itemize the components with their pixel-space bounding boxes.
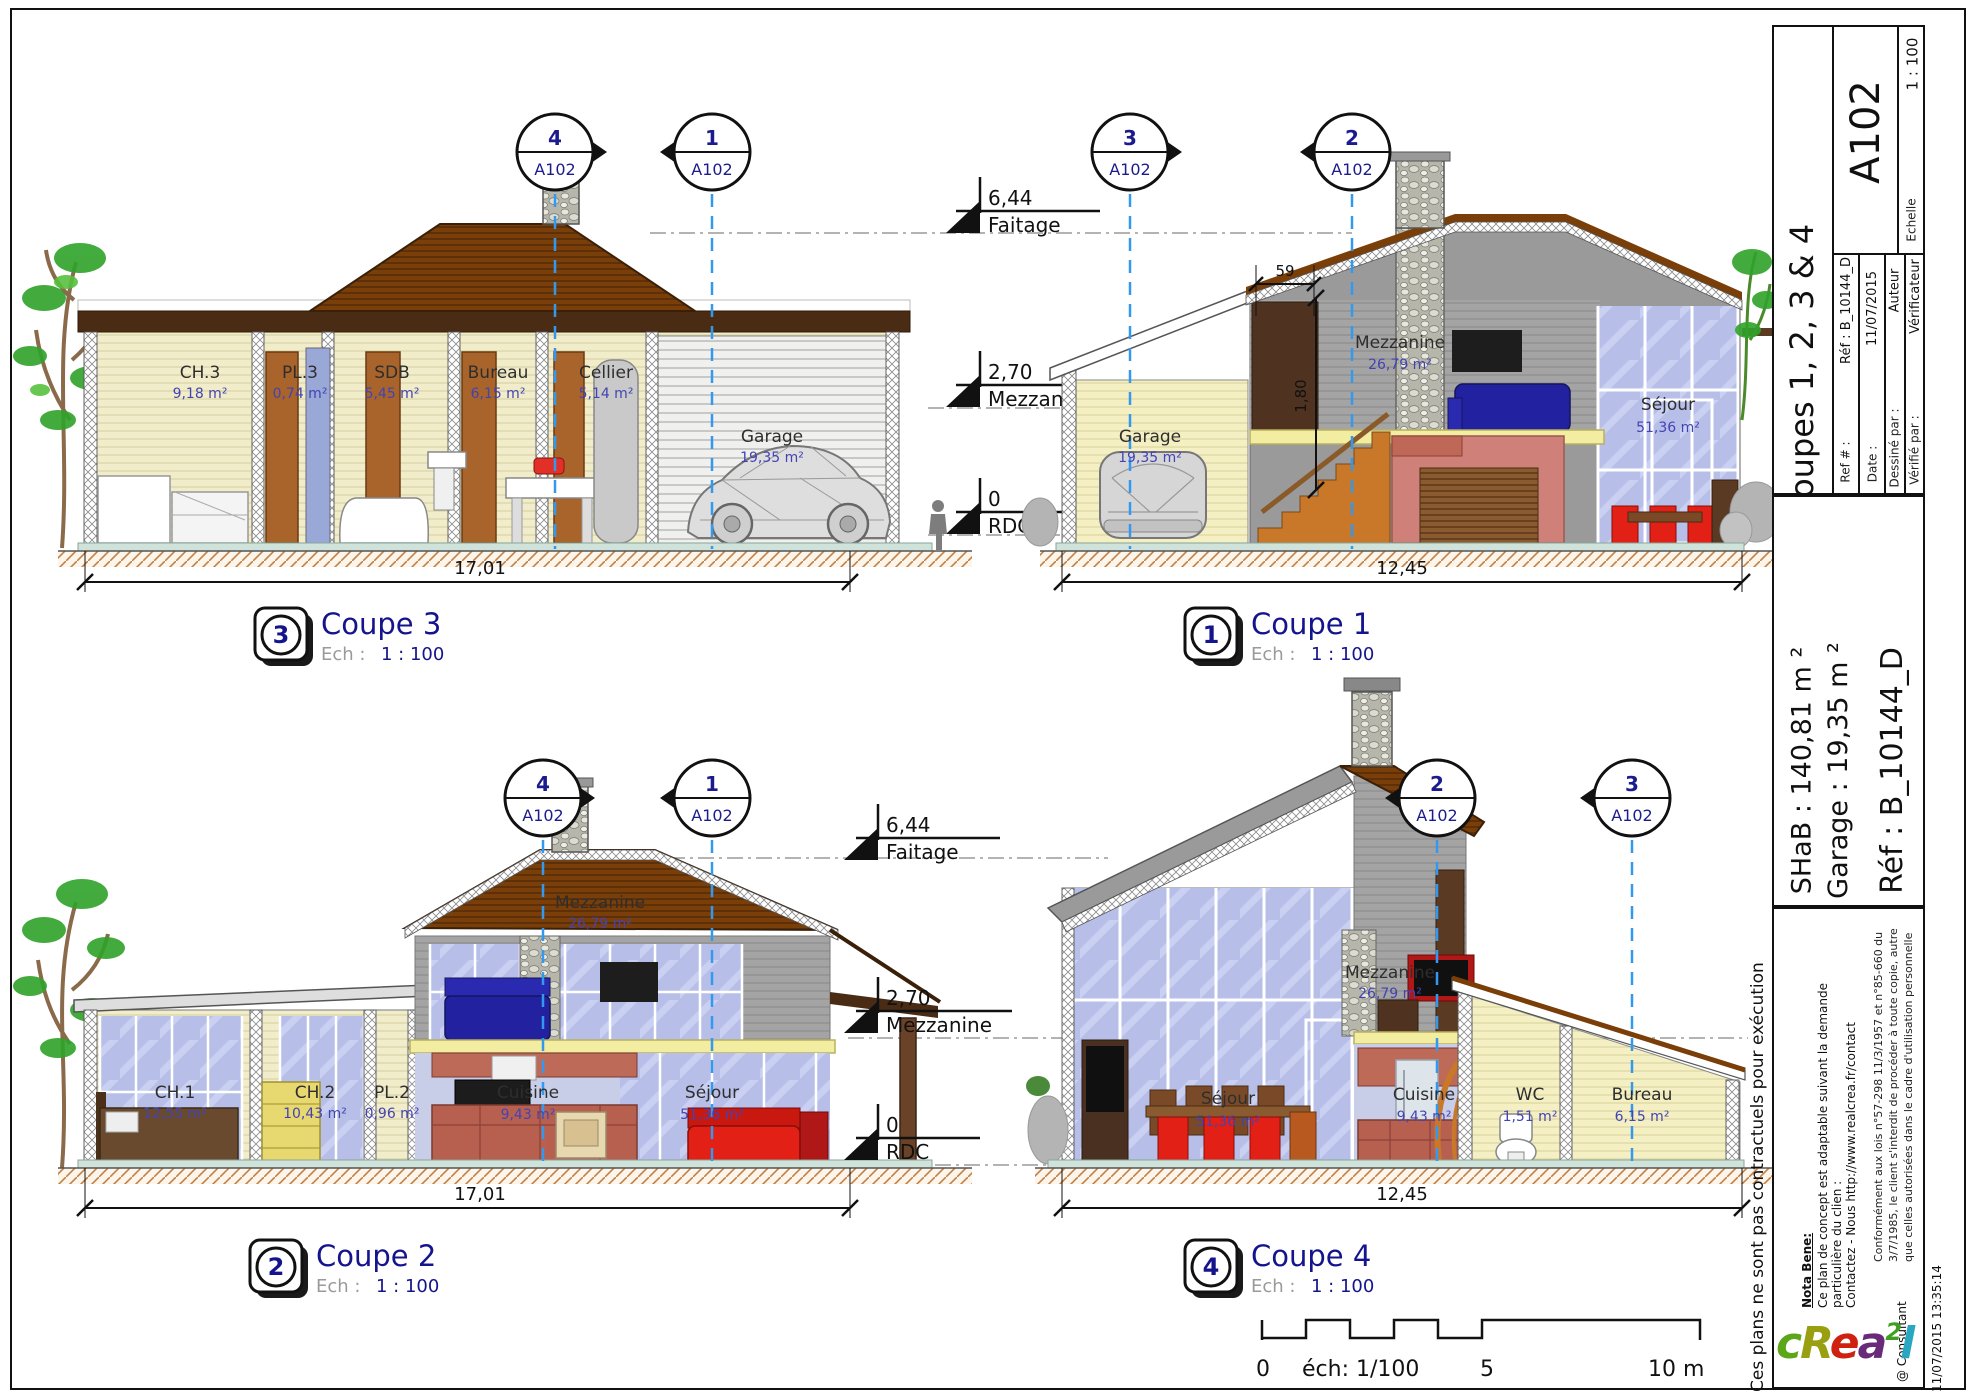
coupe-scale-label: Ech : <box>316 1276 360 1297</box>
dim-text: 17,01 <box>454 1184 506 1205</box>
room-area: 51,36 m² <box>1196 1114 1260 1130</box>
nota-bene-line2: particulière du clien : <box>1830 1181 1844 1308</box>
coupe-number: 1 <box>1203 621 1220 649</box>
dim-text: 1,80 <box>1292 379 1310 412</box>
room-area: 6,15 m² <box>471 386 526 402</box>
coupe2-drawing: CH.1 12,55 m² CH.2 10,43 m² PL.2 0,96 m²… <box>13 760 1012 1298</box>
room-area: 26,79 m² <box>1358 986 1422 1002</box>
coupe-title: Coupe 3 <box>321 607 441 641</box>
sections-drawing: CH.3 9,18 m² PL.3 0,74 m² SDB 5,45 m² Bu… <box>0 0 1980 1400</box>
level-value: 0 <box>886 1113 899 1137</box>
coupe-scale-label: Ech : <box>1251 644 1295 665</box>
level-label: Faitage <box>886 840 959 864</box>
room-area: 0,96 m² <box>365 1106 420 1122</box>
room-label: Bureau <box>468 363 529 383</box>
coupe4-drawing: Séjour 51,36 m² Mezzanine 26,79 m² Cuisi… <box>1026 678 1783 1298</box>
marker-number: 4 <box>548 126 562 150</box>
level-label: Faitage <box>988 213 1061 237</box>
garage-area: Garage : 19,35 m ² <box>1823 642 1854 899</box>
nota-bene-title: Nota Bene: <box>1800 1233 1814 1308</box>
marker-number: 2 <box>1430 772 1444 796</box>
coupe-title: Coupe 4 <box>1251 1239 1371 1273</box>
coupe4-ground <box>1035 1160 1783 1184</box>
level-marker-rdc-top: 0 RDC <box>946 478 1080 538</box>
legal-line1: Conformément aux lois n°57-298 11/3/1957… <box>1872 932 1885 1262</box>
print-timestamp: 11/07/2015 13:35:14 <box>1930 1265 1944 1392</box>
room-label: Bureau <box>1612 1085 1673 1105</box>
section-marker-1: 1 A102 <box>660 760 750 836</box>
dim-text: 12,45 <box>1376 558 1428 579</box>
room-label: Séjour <box>1201 1089 1255 1109</box>
room-area: 9,18 m² <box>173 386 228 402</box>
level-value: 2,70 <box>988 360 1033 384</box>
room-area: 19,35 m² <box>740 450 804 466</box>
coupe-scale-value: 1 : 100 <box>376 1276 439 1297</box>
marker-sheet: A102 <box>691 160 732 179</box>
room-area: 1,51 m² <box>1503 1109 1558 1125</box>
room-area: 51,36 m² <box>1636 420 1700 436</box>
room-area: 26,79 m² <box>568 916 632 932</box>
coupe-scale-label: Ech : <box>321 644 365 665</box>
level-value: 0 <box>988 487 1001 511</box>
room-label: Cellier <box>579 363 633 383</box>
checked-by-label: Vérifié par : <box>1908 415 1922 484</box>
dim-text: 59 <box>1275 262 1294 280</box>
coupe-title: Coupe 2 <box>316 1239 436 1273</box>
room-area: 5,14 m² <box>579 386 634 402</box>
room-area: 51,36 m² <box>680 1107 744 1123</box>
nota-bene-line1: Ce plan de concept est adaptable suivant… <box>1816 983 1830 1308</box>
scale-label: Echelle <box>1905 198 1919 241</box>
marker-sheet: A102 <box>1611 806 1652 825</box>
coupe-number: 4 <box>1203 1253 1220 1281</box>
room-label: SDB <box>374 363 410 383</box>
scalebar-zero: 0 <box>1256 1357 1270 1382</box>
crea-logo: cRea2l <box>1776 1318 1926 1388</box>
drawing-sheet: CH.3 9,18 m² PL.3 0,74 m² SDB 5,45 m² Bu… <box>0 0 1980 1400</box>
date-value: 11/07/2015 <box>1865 271 1880 346</box>
coupe3-drawing: CH.3 9,18 m² PL.3 0,74 m² SDB 5,45 m² Bu… <box>13 114 1112 666</box>
coupe-scale-value: 1 : 100 <box>1311 1276 1374 1297</box>
checked-by-value: Vérificateur <box>1908 259 1923 334</box>
section-marker-3: 3 A102 <box>1092 114 1182 190</box>
marker-number: 2 <box>1345 126 1359 150</box>
level-label: RDC <box>886 1140 929 1164</box>
level-marker-faitage-top: 6,44 Faitage <box>946 177 1100 237</box>
coupe-number: 3 <box>273 621 290 649</box>
section-marker-4: 4 A102 <box>517 114 607 190</box>
room-label: Séjour <box>1641 395 1695 415</box>
marker-sheet: A102 <box>691 806 732 825</box>
room-area: 5,45 m² <box>365 386 420 402</box>
room-area: 9,43 m² <box>501 1107 556 1123</box>
margin-disclaimer: Ces plans ne sont pas contractuels pour … <box>1748 962 1768 1392</box>
marker-number: 3 <box>1625 772 1639 796</box>
room-label: PL.2 <box>374 1083 410 1103</box>
coupe2-label-block: 2 Coupe 2 Ech : 1 : 100 <box>250 1239 439 1298</box>
marker-number: 3 <box>1123 126 1137 150</box>
coupe-title: Coupe 1 <box>1251 607 1371 641</box>
marker-sheet: A102 <box>1416 806 1457 825</box>
room-label: Cuisine <box>1393 1085 1455 1105</box>
coupe1-drawing: 59 1,80 Garage 19,35 m² Mezzanine 26,79 … <box>1022 114 1784 666</box>
level-value: 6,44 <box>988 186 1033 210</box>
legal-line3: que celles autorisées dans le cadre d'ut… <box>1902 933 1915 1262</box>
marker-number: 4 <box>536 772 550 796</box>
coupe-scale-value: 1 : 100 <box>1311 644 1374 665</box>
room-label: Mezzanine <box>1355 333 1445 353</box>
scale-bar: 0 éch: 1/100 5 10 m <box>1256 1320 1704 1382</box>
level-value: 6,44 <box>886 813 931 837</box>
section-marker-2: 2 A102 <box>1300 114 1390 190</box>
room-label: PL.3 <box>282 363 318 383</box>
room-label: CH.3 <box>180 363 221 383</box>
coupe1-label-block: 1 Coupe 1 Ech : 1 : 100 <box>1185 607 1374 666</box>
room-label: Mezzanine <box>1345 963 1435 983</box>
room-label: Garage <box>1119 427 1181 447</box>
room-area: 10,43 m² <box>283 1106 347 1122</box>
marker-number: 1 <box>705 772 719 796</box>
sheet-number: A102 <box>1843 80 1889 184</box>
date-label: Date : <box>1865 446 1879 483</box>
drawn-by-value: Auteur <box>1888 268 1903 312</box>
level-value: 2,70 <box>886 986 931 1010</box>
sheet-title: Coupes 1, 2, 3 & 4 <box>1783 224 1821 520</box>
marker-sheet: A102 <box>1109 160 1150 179</box>
scalebar-ech: éch: 1/100 <box>1302 1357 1419 1382</box>
scalebar-five: 5 <box>1480 1357 1494 1382</box>
shab-area: SHaB : 140,81 m ² <box>1787 646 1818 894</box>
coupe3-label-block: 3 Coupe 3 Ech : 1 : 100 <box>255 607 444 666</box>
logo-letter: c <box>1776 1318 1800 1369</box>
coupe3-building <box>78 150 910 544</box>
logo-letter: a <box>1858 1318 1886 1369</box>
room-label: Garage <box>741 427 803 447</box>
marker-sheet: A102 <box>522 806 563 825</box>
room-label: Mezzanine <box>555 893 645 913</box>
drawn-by-label: Dessiné par : <box>1888 408 1902 487</box>
dim-text: 12,45 <box>1376 1184 1428 1205</box>
section-marker-1: 1 A102 <box>660 114 750 190</box>
bush-icon <box>1022 498 1058 546</box>
level-marker-faitage-bottom: 6,44 Faitage <box>844 804 1000 864</box>
room-area: 0,74 m² <box>273 386 328 402</box>
logo-letter: e <box>1830 1318 1858 1369</box>
coupe3-ground <box>58 543 972 567</box>
room-label: CH.1 <box>155 1083 196 1103</box>
level-label: Mezzanine <box>886 1013 992 1037</box>
room-area: 19,35 m² <box>1118 450 1182 466</box>
marker-sheet: A102 <box>1331 160 1372 179</box>
marker-number: 1 <box>705 126 719 150</box>
ref-value: Réf : B_10144_D <box>1839 257 1854 364</box>
room-label: Cuisine <box>497 1083 559 1103</box>
room-label: CH.2 <box>295 1083 336 1103</box>
room-area: 9,43 m² <box>1397 1109 1452 1125</box>
room-area: 6,15 m² <box>1615 1109 1670 1125</box>
scalebar-ten: 10 m <box>1648 1357 1704 1382</box>
logo-letter: 2 <box>1885 1318 1900 1346</box>
room-area: 26,79 m² <box>1368 357 1432 373</box>
logo-letter: R <box>1800 1318 1830 1369</box>
legal-line2: 3/7/1985, le client s'interdit de procéd… <box>1887 928 1900 1262</box>
section-marker-3: 3 A102 <box>1580 760 1670 836</box>
coupe-scale-value: 1 : 100 <box>381 644 444 665</box>
coupe-scale-label: Ech : <box>1251 1276 1295 1297</box>
reference-big: Réf : B_10144_D <box>1875 647 1910 894</box>
room-label: Séjour <box>685 1083 739 1103</box>
coupe2-ground <box>58 1160 972 1184</box>
logo-letter: l <box>1900 1318 1913 1369</box>
marker-sheet: A102 <box>534 160 575 179</box>
room-label: WC <box>1516 1085 1545 1105</box>
coupe-number: 2 <box>268 1253 285 1281</box>
nota-bene-line3: Contactez - Nous http://www.realcrea.fr/… <box>1844 1022 1858 1308</box>
sheet-scale: 1 : 100 <box>1903 38 1921 91</box>
ref-label: Ref # : <box>1839 441 1853 482</box>
coupe4-label-block: 4 Coupe 4 Ech : 1 : 100 <box>1185 1239 1374 1298</box>
dim-text: 17,01 <box>454 558 506 579</box>
room-area: 12,55 m² <box>143 1106 207 1122</box>
